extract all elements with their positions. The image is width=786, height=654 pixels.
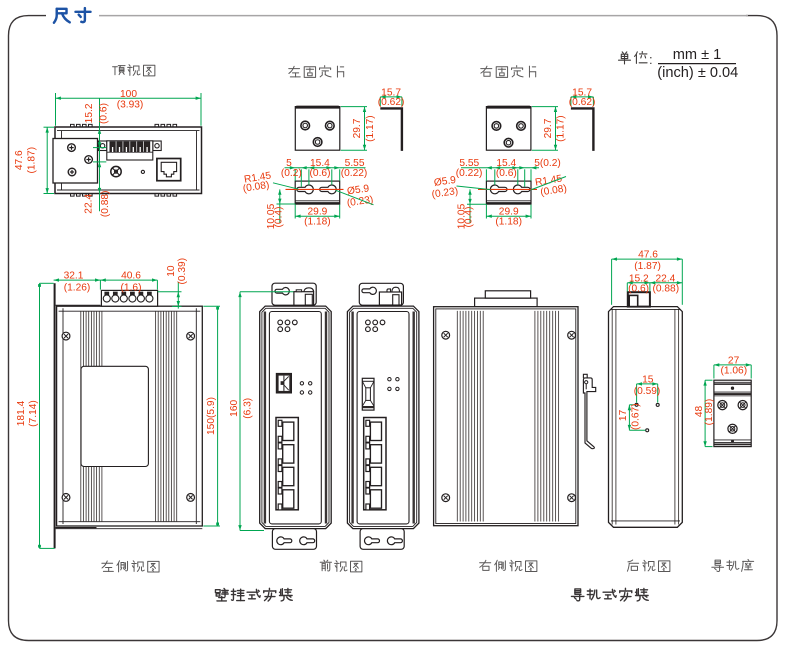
svg-text:(7.14): (7.14) xyxy=(28,400,39,427)
svg-text:(inch) ± 0.04: (inch) ± 0.04 xyxy=(657,65,738,81)
svg-text:(0.22): (0.22) xyxy=(341,168,368,179)
svg-text:32.1: 32.1 xyxy=(64,271,84,282)
svg-text:(1.26): (1.26) xyxy=(64,283,91,294)
svg-text:(0.62): (0.62) xyxy=(378,97,405,108)
svg-text:(0.4): (0.4) xyxy=(464,207,475,228)
svg-text:(1.17): (1.17) xyxy=(365,115,376,142)
svg-text:17: 17 xyxy=(618,409,629,421)
svg-text:22.4: 22.4 xyxy=(84,194,95,214)
svg-text:47.6: 47.6 xyxy=(638,250,658,261)
svg-text:(1.6): (1.6) xyxy=(121,283,142,294)
svg-text:(0.23): (0.23) xyxy=(346,195,374,210)
svg-text:(3.93): (3.93) xyxy=(117,99,144,110)
svg-text:15: 15 xyxy=(642,375,654,386)
svg-text:(1.89): (1.89) xyxy=(704,399,715,426)
svg-text:(0.39): (0.39) xyxy=(177,258,188,285)
svg-text:(1.06): (1.06) xyxy=(720,365,747,376)
svg-text:(0.23): (0.23) xyxy=(431,186,459,201)
svg-text:(6.3): (6.3) xyxy=(243,398,254,419)
svg-text:(0.62): (0.62) xyxy=(569,97,596,108)
svg-text:47.6: 47.6 xyxy=(14,150,25,170)
svg-text:181.4: 181.4 xyxy=(16,400,27,426)
svg-text:(0.6): (0.6) xyxy=(628,283,649,294)
svg-text:(1.18): (1.18) xyxy=(304,217,331,228)
svg-text:(1.87): (1.87) xyxy=(634,261,661,272)
svg-text:(1.87): (1.87) xyxy=(26,147,37,174)
svg-text:(0.88): (0.88) xyxy=(652,283,679,294)
svg-text:(0.6): (0.6) xyxy=(496,168,517,179)
svg-text:(0.67): (0.67) xyxy=(630,403,641,430)
svg-text:(0.6): (0.6) xyxy=(310,168,331,179)
svg-text:(1.18): (1.18) xyxy=(495,217,522,228)
svg-text:mm ± 1: mm ± 1 xyxy=(673,47,722,63)
svg-text:(0.88): (0.88) xyxy=(100,190,111,217)
svg-text:(0.6): (0.6) xyxy=(99,103,110,124)
svg-text:(1.17): (1.17) xyxy=(556,115,567,142)
svg-text:(0.2): (0.2) xyxy=(281,168,302,179)
svg-text:15.2: 15.2 xyxy=(84,103,95,123)
svg-text:150(5.9): 150(5.9) xyxy=(206,397,217,435)
svg-text:40.6: 40.6 xyxy=(121,271,141,282)
svg-text:(0.22): (0.22) xyxy=(456,168,483,179)
svg-text:29.7: 29.7 xyxy=(352,118,363,138)
svg-text:29.7: 29.7 xyxy=(543,118,554,138)
svg-text:160: 160 xyxy=(229,399,240,416)
svg-text:100: 100 xyxy=(120,89,137,100)
svg-text:10: 10 xyxy=(166,265,177,277)
svg-text:(0.4): (0.4) xyxy=(273,207,284,228)
svg-text:(0.59): (0.59) xyxy=(634,386,661,397)
svg-text::: : xyxy=(649,52,653,67)
svg-text:5(0.2): 5(0.2) xyxy=(534,158,561,169)
